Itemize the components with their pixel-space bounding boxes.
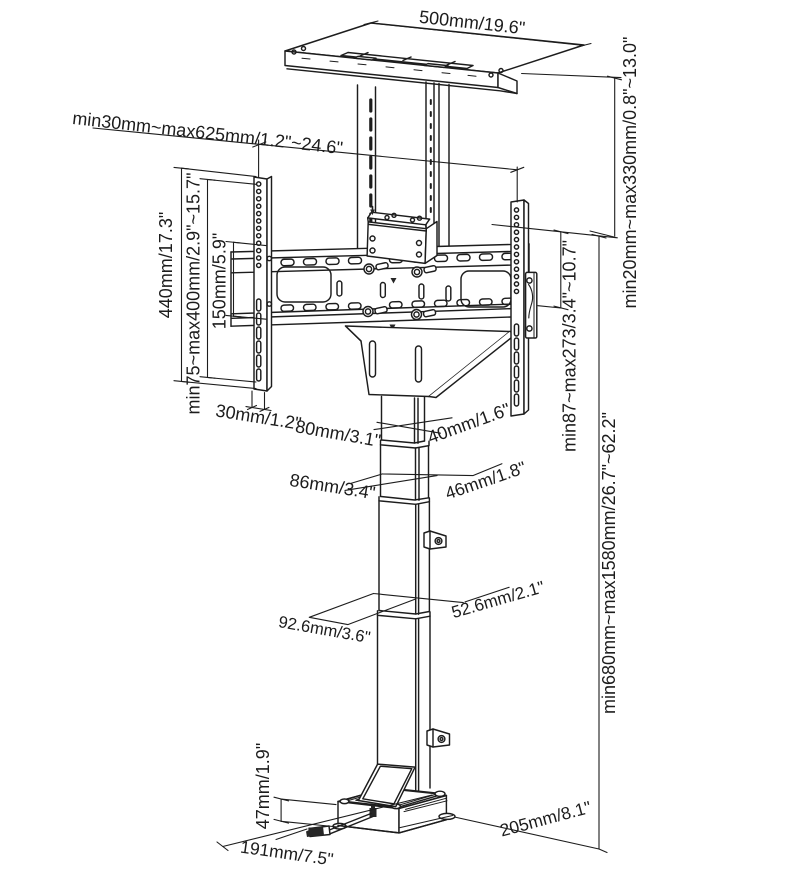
svg-text:46mm/1.8": 46mm/1.8" — [443, 457, 529, 503]
svg-text:47mm/1.9": 47mm/1.9" — [253, 743, 273, 829]
svg-text:min75~max400mm/2.9"~15.7": min75~max400mm/2.9"~15.7" — [184, 173, 204, 415]
svg-text:191mm/7.5": 191mm/7.5" — [239, 837, 335, 870]
svg-text:min680mm~max1580mm/26.7"~62.2": min680mm~max1580mm/26.7"~62.2" — [599, 412, 619, 714]
svg-text:40mm/1.6": 40mm/1.6" — [425, 399, 513, 447]
svg-text:52.6mm/2.1": 52.6mm/2.1" — [449, 577, 546, 622]
svg-text:86mm/3.4": 86mm/3.4" — [288, 470, 377, 503]
svg-text:80mm/3.1": 80mm/3.1" — [294, 416, 383, 451]
svg-text:min87~max273/3.4"~10.7": min87~max273/3.4"~10.7" — [560, 240, 580, 452]
svg-text:92.6mm/3.6": 92.6mm/3.6" — [277, 613, 372, 647]
svg-text:min20mm~max330mm/0.8"~13.0": min20mm~max330mm/0.8"~13.0" — [620, 37, 640, 309]
svg-text:min30mm~max625mm/1.2"~24.6": min30mm~max625mm/1.2"~24.6" — [71, 108, 343, 158]
svg-text:205mm/8.1": 205mm/8.1" — [498, 797, 594, 841]
svg-text:150mm/5.9": 150mm/5.9" — [210, 233, 230, 329]
svg-text:30mm/1.2": 30mm/1.2" — [214, 400, 303, 433]
svg-text:440mm/17.3": 440mm/17.3" — [156, 212, 176, 318]
